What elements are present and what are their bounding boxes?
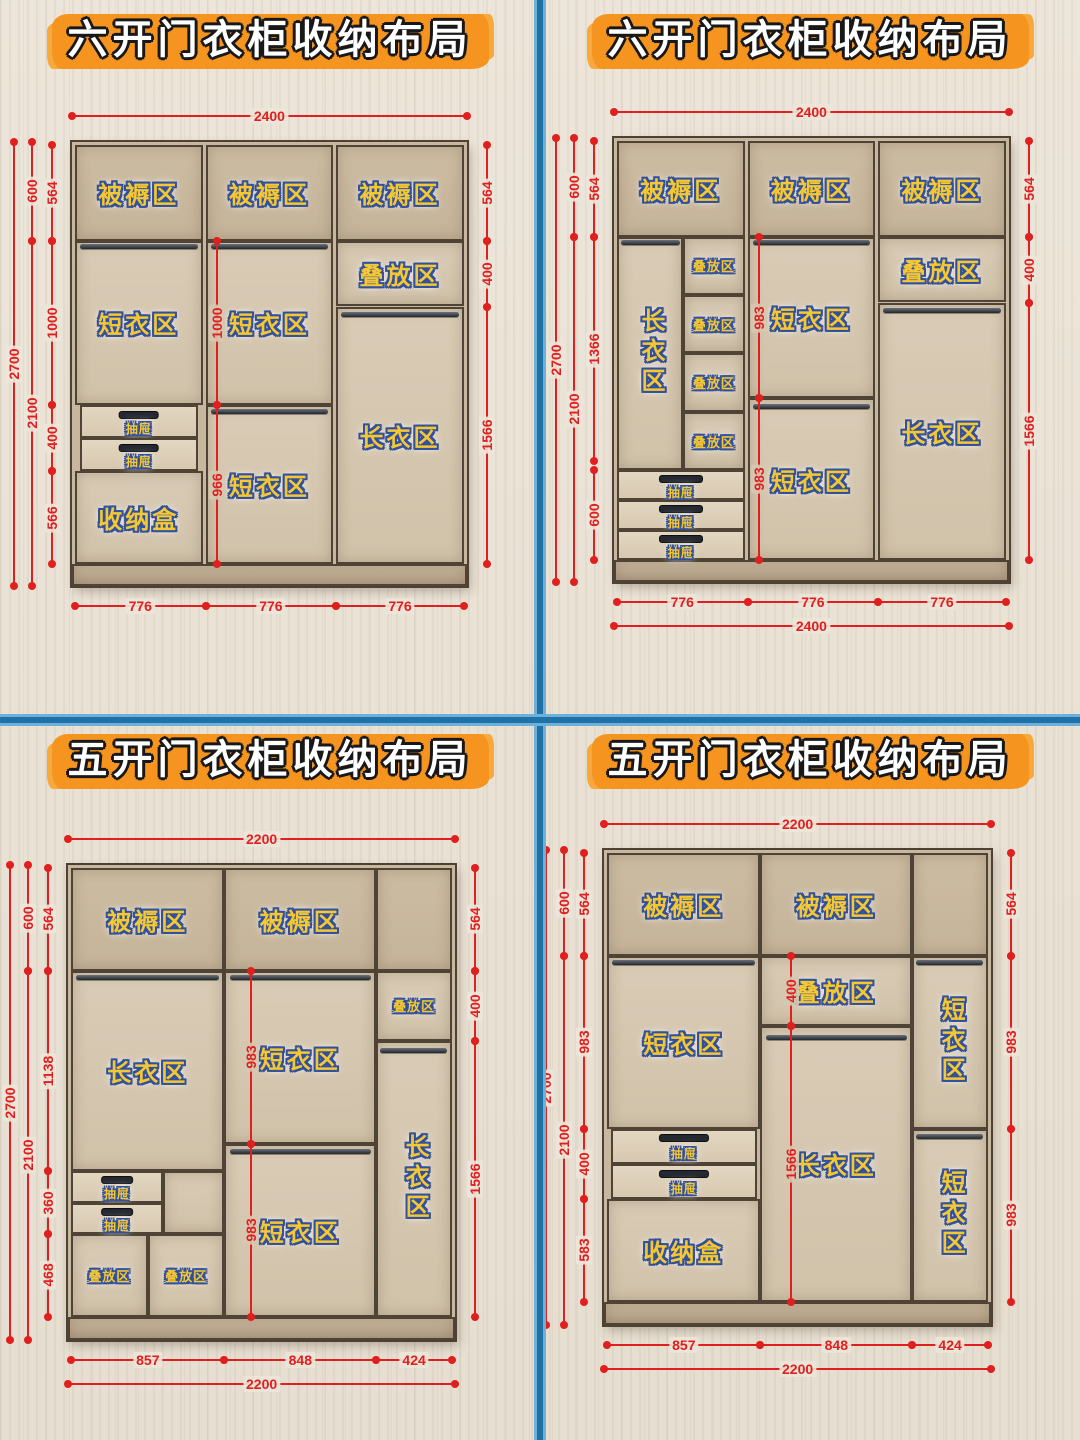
dimension-label: 2700 (548, 341, 564, 378)
hanging-rod (916, 960, 983, 965)
dimension-dot (24, 1336, 32, 1344)
dimension-dot (10, 138, 18, 146)
dimension-label: 564 (1021, 174, 1037, 203)
dimension-label: 400 (1021, 255, 1037, 284)
dimension-dot (613, 598, 621, 606)
dimension-label: 583 (576, 1236, 592, 1265)
dimension-label: 2400 (793, 104, 830, 120)
drawer-label: 抽屉 (126, 453, 152, 470)
dimension-dot (332, 602, 340, 610)
wardrobe-cabinet: 被褥区被褥区短衣区收纳盒叠放区长衣区短衣区短衣区抽屉抽屉220085784842… (604, 850, 991, 1325)
zone-cell: 被褥区 (617, 141, 745, 237)
dimension-dot (451, 835, 459, 843)
dimension-label: 2400 (793, 618, 830, 634)
dimension-dot (560, 846, 568, 854)
dimension-label: 2100 (20, 1137, 36, 1174)
dimension-dot (64, 835, 72, 843)
zone-cell: 叠放区 (336, 241, 464, 307)
dimension-label: 1566 (479, 417, 495, 454)
dimension-dot (247, 1313, 255, 1321)
drawer: 抽屉 (80, 438, 198, 471)
dimension-label: 1000 (209, 304, 225, 341)
zone-label: 叠放区 (796, 973, 877, 1008)
zone-label: 短衣区 (260, 1213, 341, 1248)
zone-label: 被褥区 (771, 171, 852, 206)
dimension-label: 848 (286, 1352, 315, 1368)
dimension-label: 776 (798, 594, 827, 610)
dimension-dot (448, 1356, 456, 1364)
zone-label: 被褥区 (643, 887, 724, 922)
dimension-dot (756, 1341, 764, 1349)
dimension-dot (471, 1037, 479, 1045)
dimension-label: 360 (40, 1188, 56, 1217)
zone-cell: 被褥区 (336, 145, 464, 241)
dimension-dot (6, 861, 14, 869)
dimension-dot (471, 864, 479, 872)
drawer-label: 抽屉 (126, 420, 152, 437)
zone-cell: 被褥区 (224, 868, 376, 970)
zone-cell: 叠放区 (683, 353, 745, 411)
quadrant-six-door-right: 六开门衣柜收纳布局 被褥区被褥区被褥区长衣区叠放区叠放区叠放区叠放区短衣区短衣区… (540, 0, 1080, 720)
zone-label: 收纳盒 (98, 500, 179, 535)
dimension-dot (10, 582, 18, 590)
hanging-rod (766, 1035, 907, 1040)
zone-cell: 长衣区 (376, 1041, 452, 1317)
dimension-dot (600, 1365, 608, 1373)
dimension-dot (570, 134, 578, 142)
dimension-dot (460, 602, 468, 610)
zone-label: 被褥区 (98, 175, 179, 210)
dimension-dot (787, 1022, 795, 1030)
dimension-label: 600 (24, 177, 40, 206)
zone-cell: 叠放区 (878, 237, 1006, 303)
dimension-dot (44, 1167, 52, 1175)
wardrobe-diagram: 被褥区被褥区被褥区短衣区收纳盒短衣区短衣区叠放区长衣区抽屉抽屉240077677… (0, 0, 540, 720)
dimension-dot (451, 1380, 459, 1388)
quadrant-title-banner: 六开门衣柜收纳布局 (0, 14, 540, 69)
dimension-dot (600, 820, 608, 828)
drawer: 抽屉 (611, 1129, 757, 1164)
drawer: 抽屉 (611, 1164, 757, 1199)
dimension-dot (610, 622, 618, 630)
drawer: 抽屉 (80, 405, 198, 438)
dimension-label: 1000 (44, 304, 60, 341)
zone-cell: 短衣区 (912, 956, 988, 1129)
zone-cell: 短衣区 (912, 1129, 988, 1302)
cabinet-base (604, 1302, 991, 1326)
dimension-label: 966 (209, 470, 225, 499)
dimension-label: 600 (20, 903, 36, 932)
zone-cell: 收纳盒 (607, 1199, 760, 1302)
zone-cell: 被褥区 (760, 853, 912, 955)
zone-cell: 被褥区 (75, 145, 203, 241)
cabinet-base (614, 560, 1009, 582)
zone-cell: 长衣区 (617, 237, 683, 471)
zone-cell: 被褥区 (206, 145, 334, 241)
zone-label: 长衣区 (796, 1146, 877, 1181)
dimension-dot (874, 598, 882, 606)
dimension-dot (1025, 233, 1033, 241)
dimension-dot (463, 112, 471, 120)
dimension-dot (372, 1356, 380, 1364)
dimension-dot (744, 598, 752, 606)
dimension-dot (580, 849, 588, 857)
dimension-dot (68, 112, 76, 120)
hanging-rod (380, 1048, 447, 1053)
dimension-label: 983 (243, 1215, 259, 1244)
dimension-dot (1005, 622, 1013, 630)
dimension-label: 400 (783, 976, 799, 1005)
zone-cell: 长衣区 (336, 307, 464, 565)
dimension-dot (48, 467, 56, 475)
quadrant-five-door-left: 五开门衣柜收纳布局 被褥区被褥区长衣区叠放区叠放区短衣区短衣区叠放区长衣区抽屉抽… (0, 720, 540, 1440)
dimension-dot (755, 556, 763, 564)
zone-cell: 叠放区 (376, 971, 452, 1041)
wardrobe-cabinet: 被褥区被褥区被褥区短衣区收纳盒短衣区短衣区叠放区长衣区抽屉抽屉240077677… (72, 142, 467, 586)
dimension-dot (908, 1341, 916, 1349)
dimension-dot (590, 233, 598, 241)
drawer-handle-icon (659, 1134, 709, 1142)
dimension-dot (483, 237, 491, 245)
dimension-dot (483, 560, 491, 568)
wardrobe-cabinet: 被褥区被褥区被褥区长衣区叠放区叠放区叠放区叠放区短衣区短衣区叠放区长衣区抽屉抽屉… (614, 138, 1009, 582)
dimension-dot (787, 952, 795, 960)
dimension-dot (1007, 952, 1015, 960)
dimension-label: 983 (751, 303, 767, 332)
dimension-dot (213, 560, 221, 568)
zone-label: 被褥区 (796, 887, 877, 922)
zone-cell: 被褥区 (878, 141, 1006, 237)
dimension-label: 983 (243, 1042, 259, 1071)
hanging-rod (753, 240, 871, 245)
dimension-dot (580, 1195, 588, 1203)
zone-label: 长衣区 (901, 414, 982, 449)
dimension-dot (44, 1313, 52, 1321)
zone-cell: 叠放区 (683, 295, 745, 353)
wardrobe-diagram: 被褥区被褥区短衣区收纳盒叠放区长衣区短衣区短衣区抽屉抽屉220085784842… (540, 720, 1080, 1440)
dimension-dot (590, 137, 598, 145)
dimension-dot (1007, 1125, 1015, 1133)
zone-label: 短衣区 (643, 1025, 724, 1060)
dimension-dot (71, 602, 79, 610)
dimension-label: 2200 (243, 831, 280, 847)
drawer-handle-icon (659, 535, 703, 543)
dimension-label: 400 (479, 259, 495, 288)
zone-label: 被褥区 (359, 175, 440, 210)
dimension-dot (1007, 1298, 1015, 1306)
dimension-dot (483, 141, 491, 149)
zone-label: 叠放区 (693, 315, 735, 334)
zone-cell: 短衣区 (607, 956, 760, 1129)
dimension-label: 2100 (556, 1122, 572, 1159)
dimension-label: 983 (576, 1027, 592, 1056)
drawer-label: 抽屉 (671, 1145, 697, 1162)
quadrant-title: 五开门衣柜收纳布局 (592, 734, 1029, 789)
dimension-label: 1566 (1021, 413, 1037, 450)
drawer-handle-icon (659, 475, 703, 483)
zone-label: 叠放区 (165, 1266, 207, 1285)
dimension-dot (24, 967, 32, 975)
dimension-dot (552, 578, 560, 586)
drawer: 抽屉 (617, 530, 745, 560)
zone-label: 叠放区 (693, 432, 735, 451)
dimension-label: 400 (44, 423, 60, 452)
dimension-label: 564 (44, 178, 60, 207)
drawer: 抽屉 (617, 500, 745, 530)
drawer-handle-icon (101, 1176, 133, 1184)
dimension-dot (247, 967, 255, 975)
hanging-rod (612, 960, 755, 965)
zone-label: 叠放区 (901, 252, 982, 287)
zone-cell: 被褥区 (71, 868, 224, 970)
dimension-dot (213, 237, 221, 245)
dimension-dot (590, 466, 598, 474)
hanging-rod (211, 409, 329, 414)
dimension-dot (1025, 137, 1033, 145)
dimension-dot (483, 303, 491, 311)
dimension-dot (6, 1336, 14, 1344)
dimension-label: 1566 (467, 1160, 483, 1197)
dimension-dot (48, 237, 56, 245)
zone-label: 叠放区 (693, 373, 735, 392)
zone-label: 短衣区 (229, 467, 310, 502)
zone-cell (376, 868, 452, 970)
drawer-label: 抽屉 (668, 514, 694, 531)
dimension-label: 2400 (251, 108, 288, 124)
drawer: 抽屉 (71, 1171, 163, 1203)
zone-cell: 被褥区 (607, 853, 760, 955)
dimension-label: 564 (576, 890, 592, 919)
dimension-label: 424 (399, 1352, 428, 1368)
dimension-label: 2200 (779, 1361, 816, 1377)
dimension-label: 1366 (586, 330, 602, 367)
dimension-dot (1025, 299, 1033, 307)
dimension-label: 776 (927, 594, 956, 610)
dimension-label: 564 (1003, 890, 1019, 919)
wardrobe-diagram: 被褥区被褥区长衣区叠放区叠放区短衣区短衣区叠放区长衣区抽屉抽屉220085784… (0, 720, 540, 1440)
dimension-dot (213, 401, 221, 409)
zone-label: 短衣区 (229, 305, 310, 340)
hanging-rod (76, 975, 219, 980)
zone-label: 被褥区 (107, 902, 188, 937)
zone-label: 短衣区 (98, 305, 179, 340)
dimension-label: 857 (133, 1352, 162, 1368)
dimension-dot (28, 138, 36, 146)
dimension-label: 1566 (783, 1145, 799, 1182)
dimension-dot (987, 820, 995, 828)
dimension-label: 400 (576, 1149, 592, 1178)
zone-label: 短衣区 (260, 1040, 341, 1075)
drawer-label: 抽屉 (668, 484, 694, 501)
dimension-dot (570, 578, 578, 586)
zone-cell: 收纳盒 (75, 471, 203, 564)
hanging-rod (80, 244, 198, 249)
dimension-label: 2200 (243, 1376, 280, 1392)
wardrobe-cabinet: 被褥区被褥区长衣区叠放区叠放区短衣区短衣区叠放区长衣区抽屉抽屉220085784… (68, 865, 455, 1340)
dimension-dot (220, 1356, 228, 1364)
drawer-label: 抽屉 (104, 1217, 130, 1234)
dimension-dot (28, 237, 36, 245)
dimension-dot (48, 141, 56, 149)
hanging-rod (341, 312, 459, 317)
dimension-label: 776 (668, 594, 697, 610)
dimension-dot (1005, 108, 1013, 116)
dimension-dot (471, 1313, 479, 1321)
dimension-label: 848 (822, 1337, 851, 1353)
dimension-label: 600 (556, 888, 572, 917)
drawer-label: 抽屉 (104, 1185, 130, 1202)
dimension-label: 2700 (2, 1084, 18, 1121)
dimension-dot (64, 1380, 72, 1388)
zone-cell: 短衣区 (75, 241, 203, 406)
dimension-label: 983 (1003, 1027, 1019, 1056)
dimension-label: 600 (566, 173, 582, 202)
zone-label: 短衣区 (938, 1170, 962, 1260)
zone-label: 叠放区 (693, 256, 735, 275)
zone-label: 被褥区 (640, 171, 721, 206)
dimension-label: 2100 (24, 395, 40, 432)
hanging-rod (621, 240, 680, 245)
dimension-dot (202, 602, 210, 610)
drawer-handle-icon (118, 411, 159, 419)
hanging-rod (883, 308, 1001, 313)
dimension-dot (590, 457, 598, 465)
drawer-label: 抽屉 (668, 544, 694, 561)
dimension-label: 857 (669, 1337, 698, 1353)
dimension-dot (44, 967, 52, 975)
dimension-dot (28, 582, 36, 590)
dimension-label: 400 (467, 991, 483, 1020)
zone-cell (912, 853, 988, 955)
infographic: 六开门衣柜收纳布局 被褥区被褥区被褥区短衣区收纳盒短衣区短衣区叠放区长衣区抽屉抽… (0, 0, 1080, 1440)
dimension-dot (580, 1125, 588, 1133)
dimension-dot (471, 967, 479, 975)
dimension-dot (590, 556, 598, 564)
dimension-dot (580, 952, 588, 960)
zone-label: 长衣区 (638, 308, 662, 398)
zone-label: 叠放区 (359, 256, 440, 291)
zone-cell: 长衣区 (878, 303, 1006, 561)
drawer-handle-icon (101, 1208, 133, 1216)
dimension-dot (580, 1298, 588, 1306)
zone-label: 被褥区 (260, 902, 341, 937)
dimension-dot (560, 952, 568, 960)
dimension-label: 983 (751, 465, 767, 494)
dimension-dot (552, 134, 560, 142)
quadrant-five-door-right: 五开门衣柜收纳布局 被褥区被褥区短衣区收纳盒叠放区长衣区短衣区短衣区抽屉抽屉22… (540, 720, 1080, 1440)
dimension-label: 564 (467, 905, 483, 934)
quadrant-title: 五开门衣柜收纳布局 (52, 734, 489, 789)
quadrant-six-door-left: 六开门衣柜收纳布局 被褥区被褥区被褥区短衣区收纳盒短衣区短衣区叠放区长衣区抽屉抽… (0, 0, 540, 720)
drawer-handle-icon (118, 444, 159, 452)
zone-cell: 叠放区 (683, 237, 745, 295)
dimension-dot (1002, 598, 1010, 606)
zone-label: 长衣区 (359, 418, 440, 453)
dimension-dot (67, 1356, 75, 1364)
dimension-dot (570, 233, 578, 241)
dimension-label: 776 (385, 598, 414, 614)
drawer: 抽屉 (617, 470, 745, 500)
zone-label: 被褥区 (229, 175, 310, 210)
dimension-dot (984, 1341, 992, 1349)
quadrant-title-banner: 五开门衣柜收纳布局 (0, 734, 540, 789)
dimension-label: 564 (40, 905, 56, 934)
zone-cell: 长衣区 (71, 971, 224, 1171)
dimension-label: 2700 (6, 345, 22, 382)
cabinet-base (68, 1317, 455, 1341)
dimension-label: 776 (256, 598, 285, 614)
dimension-label: 564 (479, 178, 495, 207)
dimension-dot (610, 108, 618, 116)
dimension-label: 2100 (566, 391, 582, 428)
dimension-label: 1138 (40, 1053, 56, 1089)
dimension-dot (1007, 849, 1015, 857)
hanging-rod (753, 404, 871, 409)
dimension-dot (44, 864, 52, 872)
dimension-label: 564 (586, 174, 602, 203)
zone-label: 被褥区 (901, 171, 982, 206)
cabinet-base (72, 564, 467, 586)
zone-label: 短衣区 (771, 462, 852, 497)
dimension-dot (987, 1365, 995, 1373)
dimension-label: 566 (44, 503, 60, 532)
dimension-label: 468 (40, 1261, 56, 1290)
divider-horizontal (0, 714, 1080, 726)
zone-label: 收纳盒 (643, 1233, 724, 1268)
zone-cell: 叠放区 (71, 1234, 148, 1316)
zone-cell: 叠放区 (683, 412, 745, 470)
dimension-dot (44, 1230, 52, 1238)
zone-label: 短衣区 (771, 300, 852, 335)
quadrant-title-banner: 六开门衣柜收纳布局 (540, 14, 1080, 69)
dimension-dot (560, 1321, 568, 1329)
dimension-dot (48, 560, 56, 568)
dimension-dot (1025, 556, 1033, 564)
drawer-label: 抽屉 (671, 1180, 697, 1197)
zone-label: 长衣区 (402, 1134, 426, 1224)
drawer-handle-icon (659, 1170, 709, 1178)
quadrant-title: 六开门衣柜收纳布局 (52, 14, 489, 69)
dimension-dot (603, 1341, 611, 1349)
zone-cell: 叠放区 (148, 1234, 225, 1316)
zone-cell: 被褥区 (748, 141, 876, 237)
hanging-rod (916, 1134, 983, 1139)
dimension-label: 983 (1003, 1200, 1019, 1229)
zone-cell (163, 1171, 225, 1234)
zone-label: 叠放区 (88, 1266, 130, 1285)
dimension-dot (24, 861, 32, 869)
dimension-dot (48, 401, 56, 409)
quadrant-title-banner: 五开门衣柜收纳布局 (540, 734, 1080, 789)
hanging-rod (211, 244, 329, 249)
dimension-label: 2200 (779, 816, 816, 832)
drawer: 抽屉 (71, 1203, 163, 1235)
dimension-dot (787, 1298, 795, 1306)
dimension-label: 424 (935, 1337, 964, 1353)
drawer-handle-icon (659, 505, 703, 513)
zone-label: 叠放区 (393, 996, 435, 1015)
dimension-dot (755, 233, 763, 241)
dimension-dot (247, 1140, 255, 1148)
dimension-label: 776 (126, 598, 155, 614)
dimension-label: 600 (586, 501, 602, 530)
zone-label: 短衣区 (938, 997, 962, 1087)
quadrant-title: 六开门衣柜收纳布局 (592, 14, 1029, 69)
zone-label: 长衣区 (107, 1053, 188, 1088)
wardrobe-diagram: 被褥区被褥区被褥区长衣区叠放区叠放区叠放区叠放区短衣区短衣区叠放区长衣区抽屉抽屉… (540, 0, 1080, 720)
